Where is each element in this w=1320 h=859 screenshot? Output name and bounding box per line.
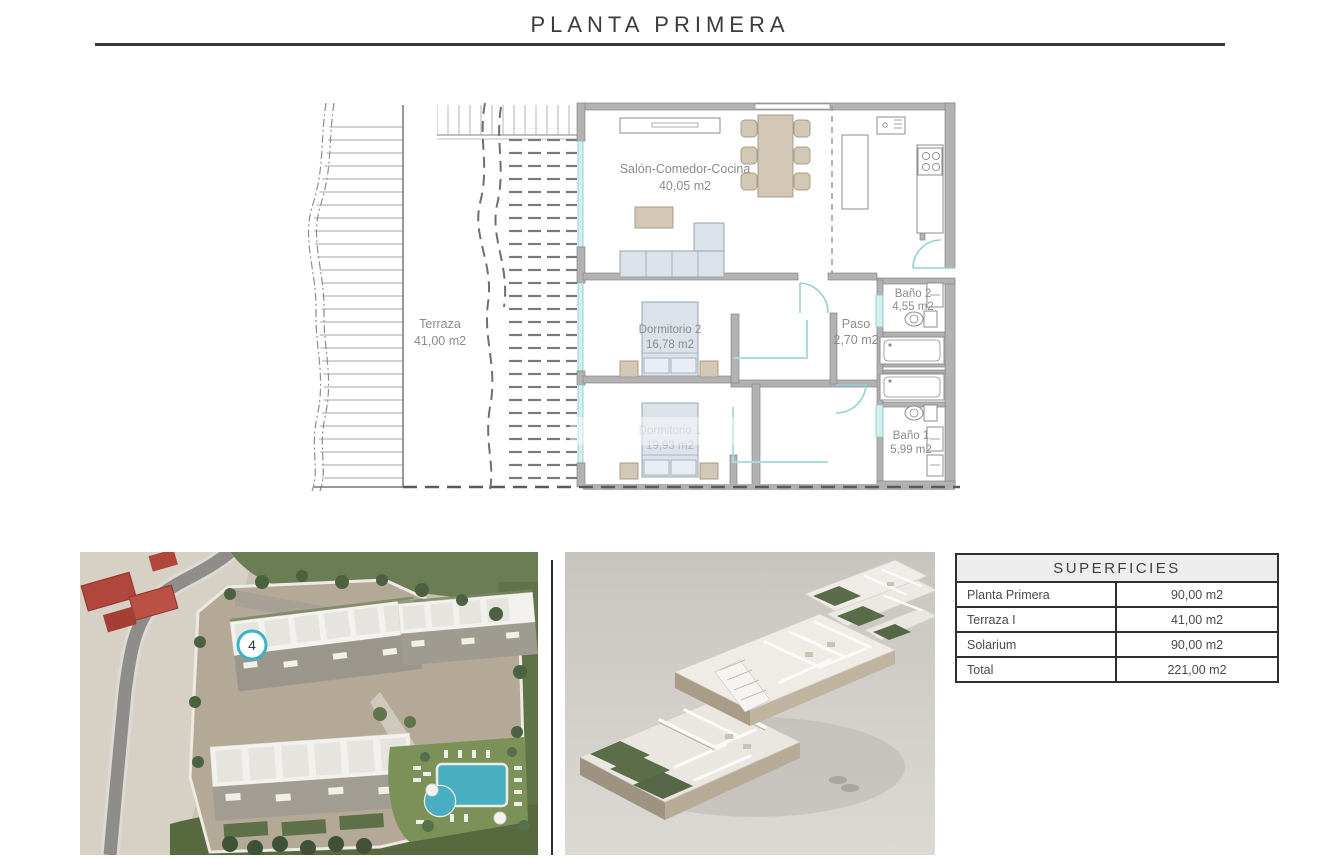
row-value: 41,00 m2 <box>1117 608 1277 631</box>
row-label: Total <box>957 658 1117 681</box>
row-value: 90,00 m2 <box>1117 633 1277 656</box>
terrace-area <box>309 103 583 491</box>
sofa-chaise <box>694 223 724 251</box>
chair <box>794 173 810 190</box>
room-label-terraza-area: 41,00 m2 <box>414 334 466 348</box>
brochure-page: PLANTA PRIMERA <box>0 0 1320 859</box>
nightstand <box>700 463 718 479</box>
room-label-bano1-area: 5,99 m2 <box>890 444 932 456</box>
nightstand <box>700 361 718 377</box>
kitchen-sink <box>877 117 905 134</box>
superficies-table: SUPERFICIES Planta Primera 90,00 m2 Terr… <box>955 553 1279 683</box>
row-value: 90,00 m2 <box>1117 583 1277 606</box>
title-rule <box>95 43 1225 46</box>
nightstand <box>620 361 638 377</box>
floor-model-3d-render <box>565 552 935 855</box>
dining-table <box>758 115 793 197</box>
kitchen-island <box>842 135 868 209</box>
room-label-paso-area: 2,70 m2 <box>833 333 878 347</box>
room-label-salon-area: 40,05 m2 <box>659 179 711 193</box>
chair <box>794 120 810 137</box>
room-label-bano2-area: 4,55 m2 <box>892 301 934 313</box>
nightstand <box>620 463 638 479</box>
room-label-bano1-name: Baño 1 <box>893 430 929 442</box>
room-label-bano2-name: Baño 2 <box>895 288 931 300</box>
room-label-dormitorio2-area: 16,78 m2 <box>646 339 694 351</box>
table-row: Total 221,00 m2 <box>957 656 1277 681</box>
table-row: Terraza I 41,00 m2 <box>957 606 1277 631</box>
window-glazing <box>578 141 583 247</box>
table-row: Solarium 90,00 m2 <box>957 631 1277 656</box>
unit-number-badge: 4 <box>238 631 266 659</box>
coffee-table <box>635 207 673 228</box>
tv-unit <box>620 118 720 133</box>
chair <box>794 147 810 164</box>
umbrella <box>426 784 438 796</box>
toilet <box>924 405 937 421</box>
room-label-paso-name: Paso <box>842 317 871 331</box>
salon-furniture <box>620 115 943 277</box>
toilet <box>924 311 937 327</box>
row-value: 221,00 m2 <box>1117 658 1277 681</box>
bathtub <box>880 337 944 364</box>
row-label: Terraza I <box>957 608 1117 631</box>
room-label-salon-name: Salón-Comedor-Cocina <box>620 162 751 176</box>
row-label: Planta Primera <box>957 583 1117 606</box>
room-label-terraza-name: Terraza <box>419 317 461 331</box>
image-divider-line <box>551 560 553 855</box>
chair <box>741 120 757 137</box>
aerial-site-photo: 4 <box>80 552 538 855</box>
table-row: Planta Primera 90,00 m2 <box>957 581 1277 606</box>
table-title: SUPERFICIES <box>1053 560 1181 577</box>
floor-plan: Terraza 41,00 m2 Salón-Comedor-Cocina 40… <box>300 95 960 495</box>
room-label-dormitorio2-name: Dormitorio 2 <box>639 324 702 336</box>
page-title: PLANTA PRIMERA <box>0 12 1320 38</box>
row-label: Solarium <box>957 633 1117 656</box>
watermark-wash <box>570 417 750 445</box>
washbasin <box>927 455 943 476</box>
shower-tray <box>880 374 944 400</box>
wardrobe <box>733 320 807 358</box>
unit-badge-number: 4 <box>248 637 256 653</box>
stove <box>918 148 942 175</box>
